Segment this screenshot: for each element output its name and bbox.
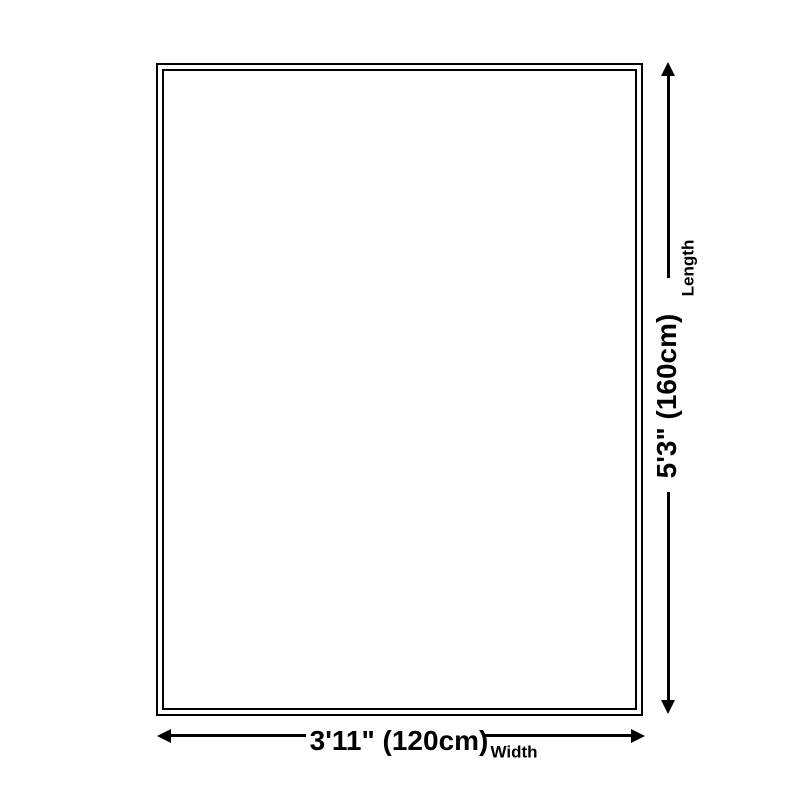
length-label: Length — [680, 240, 697, 297]
rug-dimension-diagram: Length 5'3" (160cm) 3'11" (120cm) Width — [0, 0, 800, 800]
width-line-right — [485, 734, 632, 737]
length-value: 5'3" (160cm) — [653, 314, 681, 479]
arrow-left-icon — [157, 729, 171, 743]
width-line-left — [170, 734, 306, 737]
arrow-right-icon — [631, 729, 645, 743]
rug-outline — [156, 63, 643, 716]
arrow-down-icon — [661, 700, 675, 714]
width-label: Width — [490, 744, 537, 761]
length-line-lower — [667, 492, 670, 701]
length-line-upper — [667, 74, 670, 278]
rug-inner-border — [162, 69, 637, 710]
width-value: 3'11" (120cm) — [310, 727, 489, 755]
